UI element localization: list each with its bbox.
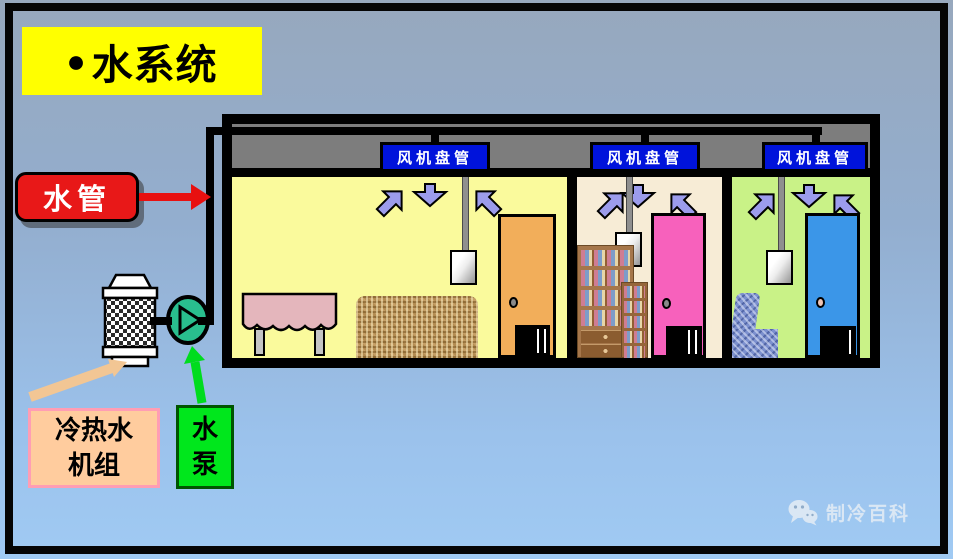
water-pipe-label-text: 水管 bbox=[43, 176, 111, 218]
watermark-text: 制冷百科 bbox=[826, 499, 910, 526]
fan-coil-label-text: 风机盘管 bbox=[397, 147, 473, 168]
airflow-return-arrow-icon bbox=[367, 178, 415, 226]
watermark: 制冷百科 bbox=[788, 499, 910, 526]
chiller-cap bbox=[109, 275, 151, 288]
door-vent bbox=[820, 326, 856, 358]
chiller-body bbox=[105, 298, 155, 347]
page-title: 水系统 bbox=[92, 31, 218, 91]
water-pipe-label: 水管 bbox=[15, 172, 139, 222]
fan-coil-label: 风机盘管 bbox=[762, 142, 868, 172]
water-pipe-vertical bbox=[206, 127, 214, 325]
room-study bbox=[577, 177, 722, 358]
pump-label-line2: 泵 bbox=[192, 447, 218, 482]
airflow-supply-arrow-icon bbox=[411, 182, 449, 208]
chiller-label: 冷热水 机组 bbox=[28, 408, 160, 488]
pump-label: 水 泵 bbox=[176, 405, 234, 489]
fan-coil-label: 风机盘管 bbox=[380, 142, 490, 172]
sofa bbox=[356, 296, 478, 358]
room-living bbox=[232, 177, 567, 358]
fan-coil-label-text: 风机盘管 bbox=[607, 147, 683, 168]
pump-outlet-pipe bbox=[198, 317, 212, 325]
fan-coil-label: 风机盘管 bbox=[590, 142, 700, 172]
chiller-label-line2: 机组 bbox=[68, 448, 120, 483]
pump-inlet-pipe bbox=[150, 317, 172, 325]
table bbox=[240, 291, 340, 358]
chiller-label-line1: 冷热水 bbox=[55, 413, 133, 448]
bookshelf-tall bbox=[621, 282, 648, 358]
fan-coil-drop-pipe bbox=[462, 177, 469, 251]
wechat-icon bbox=[788, 499, 818, 526]
building-cross-section: 风机盘管 风机盘管 风机盘管 bbox=[222, 114, 880, 368]
door bbox=[651, 213, 706, 358]
water-pipe-horizontal bbox=[206, 127, 822, 135]
pump-label-line1: 水 bbox=[192, 412, 218, 447]
door-vent bbox=[666, 326, 702, 358]
fan-coil-label-text: 风机盘管 bbox=[777, 147, 853, 168]
fan-coil-indoor-unit bbox=[766, 250, 793, 285]
fan-coil-indoor-unit bbox=[450, 250, 477, 285]
room-divider-wall bbox=[722, 177, 732, 358]
fan-coil-drop-pipe bbox=[626, 177, 633, 233]
armchair-seat bbox=[732, 329, 778, 358]
bullet-icon: ● bbox=[66, 45, 85, 77]
room-bedroom bbox=[732, 177, 870, 358]
door-knob bbox=[816, 297, 825, 308]
door-vent bbox=[515, 325, 550, 357]
title-banner: ● 水系统 bbox=[22, 27, 262, 95]
chiller-base bbox=[112, 357, 148, 366]
door-knob bbox=[662, 298, 671, 309]
airflow-supply-arrow-icon bbox=[619, 183, 657, 209]
door-knob bbox=[509, 297, 518, 308]
room-divider-wall bbox=[567, 177, 577, 358]
fan-coil-drop-pipe bbox=[778, 177, 785, 251]
door bbox=[805, 213, 860, 358]
slide-background: { "title": {"bullet": "●", "text": "水系统"… bbox=[0, 0, 953, 559]
door bbox=[498, 214, 556, 358]
